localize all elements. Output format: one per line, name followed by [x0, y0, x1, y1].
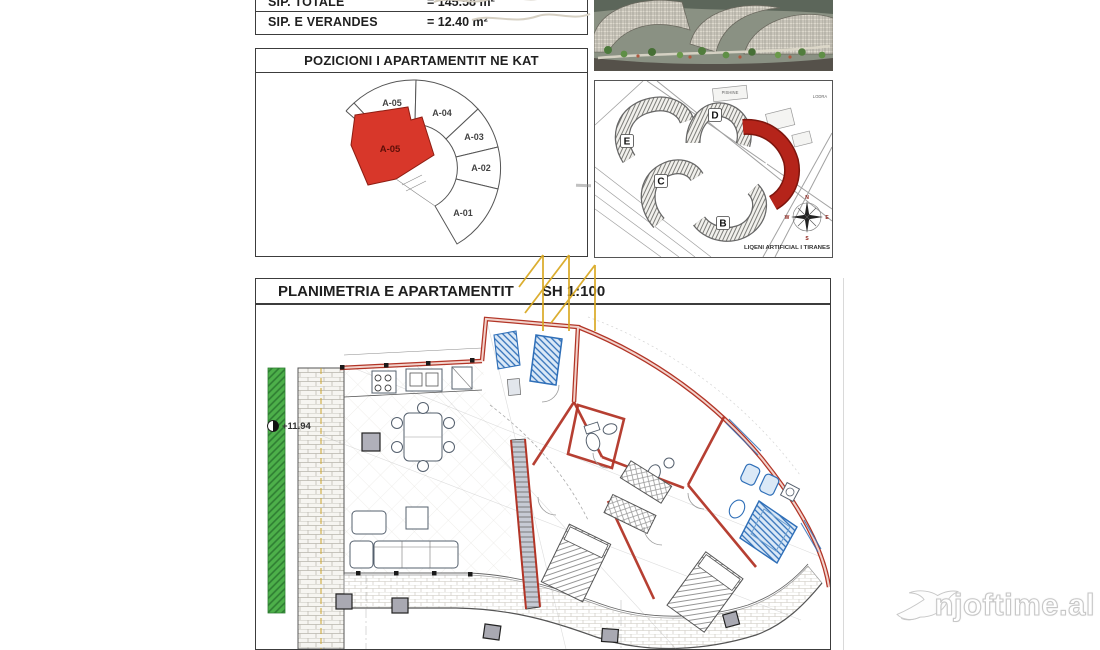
area-total-label: SIP. TOTALE — [256, 0, 427, 9]
area-veranda-label: SIP. E VERANDES — [256, 15, 427, 29]
floor-position-fan-diagram: A-05 A-04 A-03 A-02 A-01 A-05 — [256, 73, 586, 253]
table-row: SIP. TOTALE = 145.58 m² — [256, 0, 587, 12]
unit-label: A-01 — [453, 208, 473, 218]
compass-s: S — [805, 236, 809, 242]
brand-name: njoftime.al — [934, 587, 1095, 623]
playground-label: LODRA — [813, 94, 828, 99]
building-label-highlighted: A — [765, 154, 774, 168]
wardrobe — [604, 494, 656, 533]
building-label: D — [711, 111, 718, 122]
floor-position-panel: POZICIONI I APARTAMENTIT NE KAT A-05 A-0… — [255, 48, 588, 257]
floor-plan-title: PLANIMETRIA E APARTAMENTIT — [278, 283, 514, 300]
unit-label: A-05 — [382, 98, 402, 108]
building-label: C — [657, 177, 664, 188]
scan-page-edge-line — [843, 278, 844, 650]
compass-w: W — [785, 215, 790, 221]
unit-label: A-03 — [464, 132, 484, 142]
kitchen-sink — [406, 369, 442, 391]
scanned-floorplan-document: SIP. TOTALE = 145.58 m² SIP. E VERANDES … — [0, 0, 1100, 650]
armchair — [350, 541, 373, 568]
coffee-table — [406, 507, 428, 529]
pool-label: PISHINE — [722, 90, 739, 95]
sofa — [374, 541, 458, 568]
bathroom-fixtures — [726, 463, 799, 563]
building-label: E — [624, 137, 631, 148]
floor-plan-title-bar: PLANIMETRIA E APARTAMENTIT SH 1:100 — [256, 279, 830, 305]
unit-label: A-02 — [471, 163, 491, 173]
structural-column — [362, 433, 380, 451]
core-lines — [396, 175, 435, 206]
elevation-marker: +11.94 — [268, 421, 312, 433]
area-summary-table: SIP. TOTALE = 145.58 m² SIP. E VERANDES … — [255, 0, 588, 35]
scan-artifact-dash — [576, 184, 591, 188]
highlighted-unit-label: A-05 — [380, 144, 401, 155]
site-plan-panel: E D C B A PISHINE LODRA LIQENI ARTIFICIA… — [594, 80, 833, 258]
njoftime-watermark-logo: njoftime.al — [893, 574, 1095, 636]
building-3d-render — [594, 0, 833, 71]
area-total-value: = 145.58 m² — [427, 0, 587, 9]
site-plan-drawing: E D C B A PISHINE LODRA LIQENI ARTIFICIA… — [595, 81, 832, 257]
lake-label: LIQENI ARTIFICIAL I TIRANES — [744, 245, 831, 251]
green-planter-strip — [268, 368, 285, 613]
elevation-label: +11.94 — [282, 421, 312, 432]
position-panel-title: POZICIONI I APARTAMENTIT NE KAT — [256, 49, 587, 73]
entry-glazing — [494, 331, 562, 395]
bathtub — [740, 501, 797, 563]
table-row: SIP. E VERANDES = 12.40 m² — [256, 12, 587, 32]
area-veranda-value: = 12.40 m² — [427, 15, 587, 29]
wardrobe — [620, 461, 671, 503]
unit-label: A-04 — [432, 108, 452, 118]
floor-plan-scale: SH 1:100 — [542, 283, 605, 300]
loveseat — [352, 511, 386, 534]
floor-plan-panel: PLANIMETRIA E APARTAMENTIT SH 1:100 — [255, 278, 831, 650]
floor-plan-drawing: +11.94 — [256, 305, 831, 649]
compass-n: N — [805, 195, 809, 201]
building-label: B — [719, 219, 726, 230]
